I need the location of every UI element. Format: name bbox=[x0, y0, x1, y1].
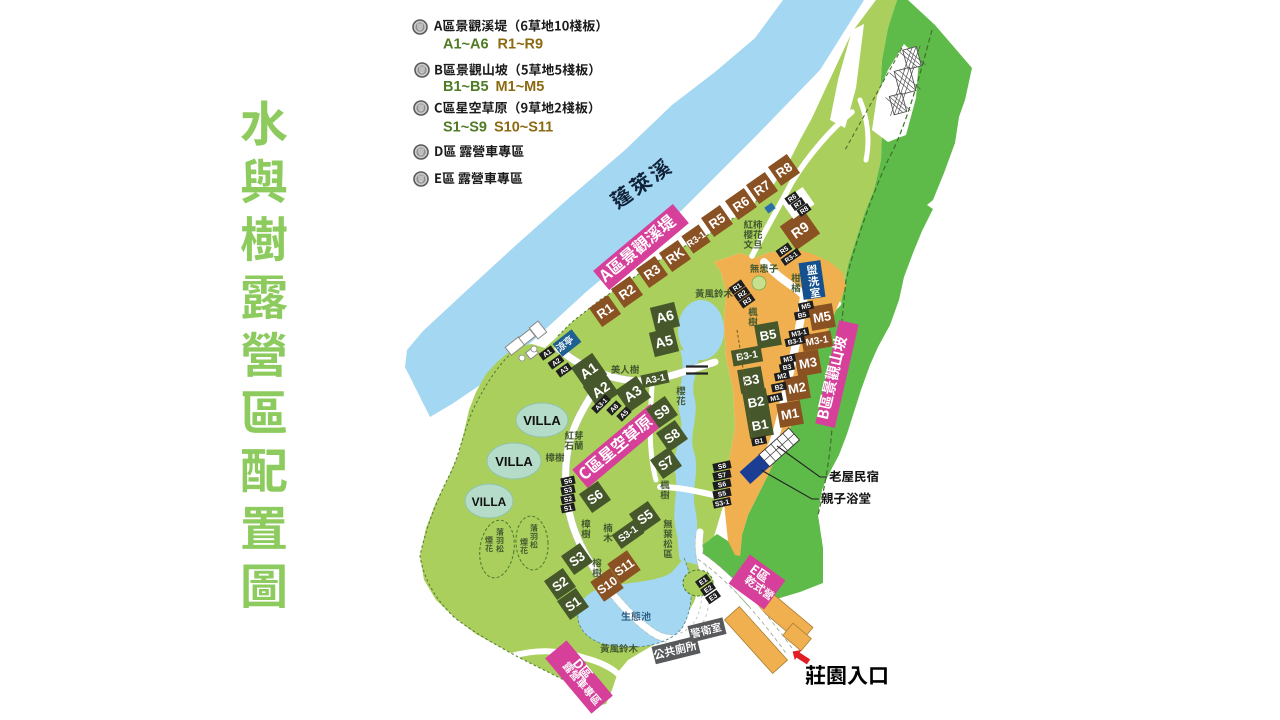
svg-text:M2: M2 bbox=[787, 379, 807, 397]
svg-text:B1: B1 bbox=[751, 416, 770, 434]
svg-text:B1~B5M1~M5: B1~B5M1~M5 bbox=[443, 79, 544, 95]
svg-text:B5: B5 bbox=[759, 326, 778, 344]
svg-text:VILLA: VILLA bbox=[472, 495, 507, 509]
svg-text:S1~S9S10~S11: S1~S9S10~S11 bbox=[443, 120, 553, 136]
svg-text:VILLA: VILLA bbox=[523, 413, 561, 428]
svg-text:M1: M1 bbox=[780, 405, 800, 423]
svg-text:M5: M5 bbox=[812, 308, 832, 326]
svg-text:B2: B2 bbox=[747, 393, 766, 411]
svg-text:M3: M3 bbox=[798, 354, 818, 372]
svg-text:A1~A6R1~R9: A1~A6R1~R9 bbox=[443, 37, 543, 53]
svg-text:VILLA: VILLA bbox=[495, 454, 533, 469]
